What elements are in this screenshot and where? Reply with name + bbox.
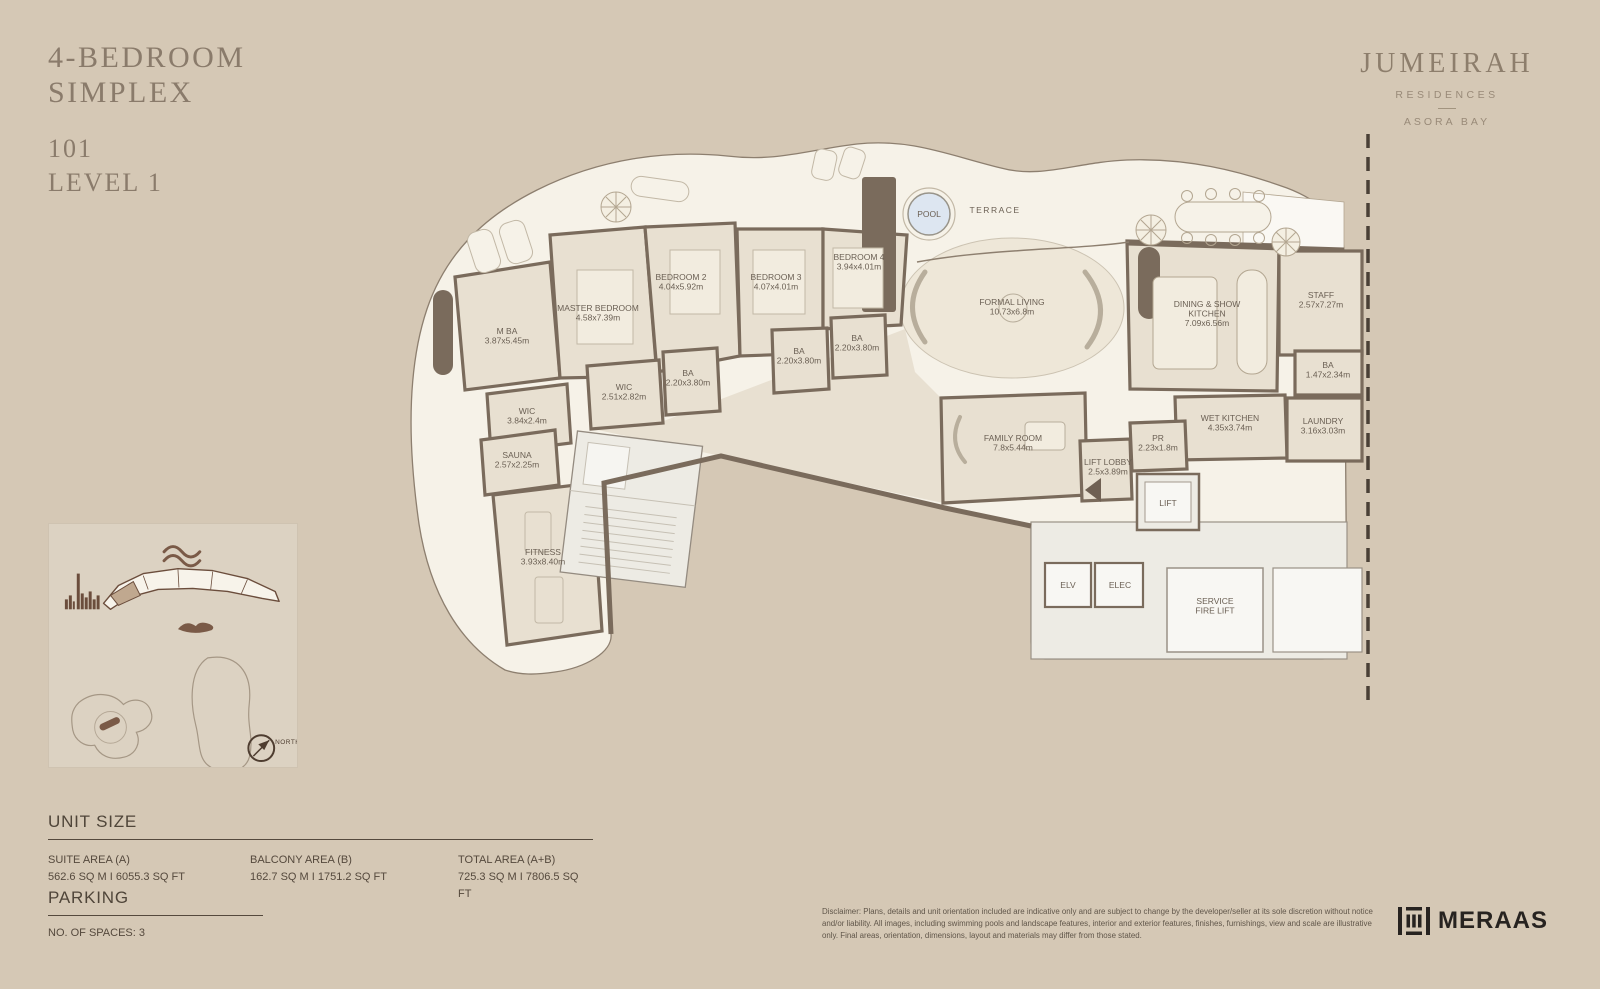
tree-icon [1272,228,1300,256]
total-area-label: TOTAL AREA (A+B) [458,852,593,869]
floor-plan: M BA3.87x5.45mMASTER BEDROOM4.58x7.39mBE… [385,122,1375,732]
floorplan-brochure-page: { "title": { "line1": "4-BEDROOM", "line… [0,0,1600,989]
room-label-elv: ELV [1060,580,1076,590]
room-label-pool: POOL [917,209,941,219]
waves-icon [164,547,200,566]
room-label-terrace: TERRACE [969,205,1020,215]
parking-spaces: NO. OF SPACES: 3 [48,927,593,939]
service-room [1273,568,1362,652]
unit-size-rule [48,839,593,840]
parking-rule [48,915,263,916]
room-label-wet-kitchen: WET KITCHEN4.35x3.74m [1201,413,1259,433]
room-label-bedroom-4: BEDROOM 43.94x4.01m [833,252,884,272]
room-label-service-fire-lift: SERVICEFIRE LIFT [1195,596,1234,616]
site-map: NORTH [48,523,298,768]
building-footprint [104,569,280,610]
brand-location: ASORA BAY [1352,116,1542,128]
suite-area-label: SUITE AREA (A) [48,852,250,869]
parking-heading: PARKING [48,888,593,908]
jumeirah-logo: JUMEIRAH RESIDENCES ASORA BAY [1352,48,1542,128]
balcony-area-value: 162.7 SQ M I 1751.2 SQ FT [250,869,458,886]
unit-number: 101 [48,132,163,166]
room-label-fitness: FITNESS3.93x8.40m [521,547,565,567]
skyline-icon [65,574,100,610]
tree-icon [601,192,631,222]
coastline [72,657,251,768]
room-label-laundry: LAUNDRY3.16x3.03m [1301,416,1345,436]
unit-size-heading: UNIT SIZE [48,812,593,832]
room-label-lift: LIFT [1159,498,1176,508]
meraas-wordmark: MERAAS [1438,907,1548,935]
meraas-icon [1398,905,1430,937]
parking-section: PARKING NO. OF SPACES: 3 [48,888,593,939]
brand-name: JUMEIRAH [1352,48,1542,80]
brand-residences: RESIDENCES [1352,89,1542,101]
room-label-lift-lobby: LIFT LOBBY2.5x3.89m [1084,457,1132,477]
unit-info: 101 LEVEL 1 [48,132,163,200]
room-label-elec: ELEC [1109,580,1131,590]
site-highlight [98,716,121,732]
north-label: NORTH [275,739,298,746]
disclaimer-text: Disclaimer: Plans, details and unit orie… [822,906,1390,942]
title-line1: 4-BEDROOM [48,40,246,75]
terrace-dining-table [1175,202,1271,232]
suite-area-value: 562.6 SQ M I 6055.3 SQ FT [48,869,250,886]
unit-level: LEVEL 1 [48,166,163,200]
island-icon [178,623,213,633]
page-title: 4-BEDROOM SIMPLEX [48,40,246,111]
title-line2: SIMPLEX [48,75,246,110]
meraas-logo: MERAAS [1398,905,1548,937]
wall-pillar-left [433,290,453,375]
compass: NORTH [248,735,298,761]
room-label-bedroom-2: BEDROOM 24.04x5.92m [655,272,706,292]
stair-core [560,431,702,587]
tree-icon [1136,215,1166,245]
room-label-bedroom-3: BEDROOM 34.07x4.01m [750,272,801,292]
kitchen-island [1237,270,1267,374]
brand-divider [1438,108,1456,109]
balcony-area-label: BALCONY AREA (B) [250,852,458,869]
